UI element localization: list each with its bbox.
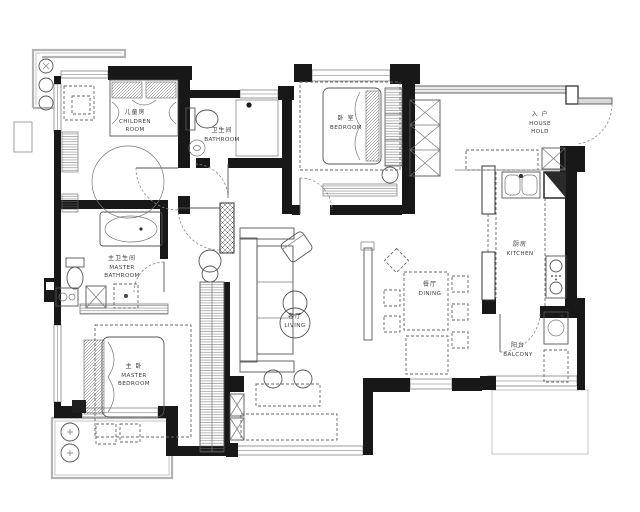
dining-chair-icon [452,276,468,292]
master-bathroom-label-en2: BATHROOM [104,273,140,279]
sw-balcony-outline [52,418,172,478]
dining-chair-icon [384,316,400,332]
dining-furniture [384,248,468,374]
living-bottom-window [234,446,363,455]
bathroom-door [195,164,228,198]
floor-drain-icon [189,140,205,156]
shower-area [236,100,278,156]
entry-door [566,86,612,144]
se-platform [492,390,588,454]
burner [550,282,562,294]
sw-balcony [52,418,172,478]
master-bathroom-label-zh: 主卫生间 [108,254,136,262]
children-room-label: 儿童房 CHILDREN ROOM [119,108,151,133]
plant-detail [43,63,49,69]
side-table-icon [96,424,116,444]
dining-label-en: DINING [419,291,442,297]
balcony-label: 阳台 BALCONY [503,341,533,358]
stool-icon [294,370,312,388]
household-label-en1: HOUSE [529,121,551,127]
master-left-window [54,325,61,402]
bathroom-top-window [240,90,278,98]
master-bedroom-label: 主 卧 MASTER BEDROOM [118,362,150,387]
coffee-table-icon [283,291,307,315]
washer-knob [561,315,564,318]
bathroom-label-en: BATHROOM [204,137,240,143]
ottoman-icon [382,167,398,183]
master-bathroom-furniture [56,212,168,314]
entry-top-wall [408,86,566,93]
children-left-window [54,84,61,132]
stool-detail [67,429,73,456]
wall-niche [46,282,54,290]
bathtub-icon [100,212,162,246]
drain-detail [193,146,201,151]
dining-chair-icon [452,304,468,320]
dining-cabinet-icon [406,336,448,374]
children-balcony-window [61,71,108,78]
pillow-icon [112,82,142,98]
vase-icon [199,250,221,272]
bedroom-label-zh: 卧 室 [338,114,355,122]
low-wall [80,304,168,314]
faucet-icon [519,174,523,178]
living-label-zh: 客厅 [288,312,302,320]
floor-plan-drawing: 儿童房 CHILDREN ROOM 卫生间 BATHROOM 卧 室 BEDRO… [0,0,640,512]
console-table-icon [364,248,372,340]
bed-curtain [108,342,114,412]
dining-chair-rotated-icon [384,248,408,272]
cabinet-icon [62,194,78,212]
bathroom-label: 卫生间 BATHROOM [204,126,240,143]
armchair-icon [280,230,314,263]
master-bedroom-label-zh: 主 卧 [126,362,143,370]
sofa-seat [257,246,293,354]
bathroom-label-zh: 卫生间 [211,126,232,134]
shower-head-icon [246,102,251,107]
household-label: 入 户 HOUSE HOLD [529,110,551,135]
stool-icon [120,424,140,442]
dining-bottom-window [410,379,452,389]
toilet-icon [196,110,218,128]
drain-icon [124,294,128,298]
wardrobe-icon [385,88,402,166]
pillow-icon [84,340,104,414]
pillow-icon [366,91,379,161]
stool-icon [264,370,282,388]
burner [550,260,562,272]
hall-door [178,208,220,250]
kitchen-sliding-door [482,166,495,300]
cabinet-icon [62,132,78,172]
vase-icon [202,266,218,282]
dining-chair-icon [384,290,400,306]
toilet-icon [67,267,83,289]
sink-basin [505,175,520,195]
sink-basin [522,175,537,195]
kitchen-label: 厨房 KITCHEN [506,240,533,257]
entry-cabinet-icon [466,150,538,170]
master-bedroom-furniture [72,250,224,452]
column [220,203,234,253]
desk-chair-icon [72,96,90,114]
bathtub-drain [139,227,142,230]
master-bedroom-label-en2: BEDROOM [118,381,150,387]
balcony-bottom-window [488,376,577,386]
plant-pot-icon [39,78,53,92]
children-room-label-en2: ROOM [125,127,144,133]
nightstand-icon [72,400,86,413]
sw-balcony-inner [55,421,169,475]
kitchen-furniture [455,170,566,306]
bedroom-top-window [312,70,390,81]
dining-label: 餐厅 DINING [419,280,442,297]
household-label-zh: 入 户 [532,110,549,118]
sofa-armrest [240,228,294,239]
bathtub-inner [105,216,157,242]
balcony-label-zh: 阳台 [511,341,525,349]
bedroom-furniture [300,82,402,196]
household-label-en2: HOLD [531,129,549,135]
sofa-back [240,238,257,362]
master-bathroom-label: 主卫生间 MASTER BATHROOM [104,254,140,279]
sofa-armrest [240,361,294,372]
bedroom-label-en: BEDROOM [330,125,362,131]
kitchen-label-zh: 厨房 [513,240,527,248]
tv-bench-icon [241,414,337,440]
children-room-label-en1: CHILDREN [119,119,151,125]
bedroom-label: 卧 室 BEDROOM [330,114,362,131]
ac-platform-icon [14,122,32,152]
children-room-label-zh: 儿童房 [124,108,145,116]
dining-label-zh: 餐厅 [423,280,437,288]
toilet-tank [66,258,84,267]
desk-icon [64,86,94,120]
bed-bench-icon [323,184,397,196]
se-platform-outline [492,390,588,454]
balcony-label-en: BALCONY [503,352,533,358]
basin [69,294,75,300]
balcony-furniture [544,312,568,382]
master-bedroom-label-en1: MASTER [121,373,146,379]
pillow-icon [146,82,176,98]
tv-cabinet-icon [256,384,320,406]
living-label: 客厅 LIVING [284,312,305,329]
master-bathroom-label-en1: MASTER [109,265,134,271]
dining-chair-icon [452,332,468,348]
living-furniture [230,228,374,440]
living-label-en: LIVING [284,323,305,329]
kitchen-label-en: KITCHEN [506,251,533,257]
washer-drum [548,320,564,336]
stove-icon [546,256,566,298]
children-room-furniture [62,80,178,218]
floor-plan: 儿童房 CHILDREN ROOM 卫生间 BATHROOM 卧 室 BEDRO… [0,0,640,512]
